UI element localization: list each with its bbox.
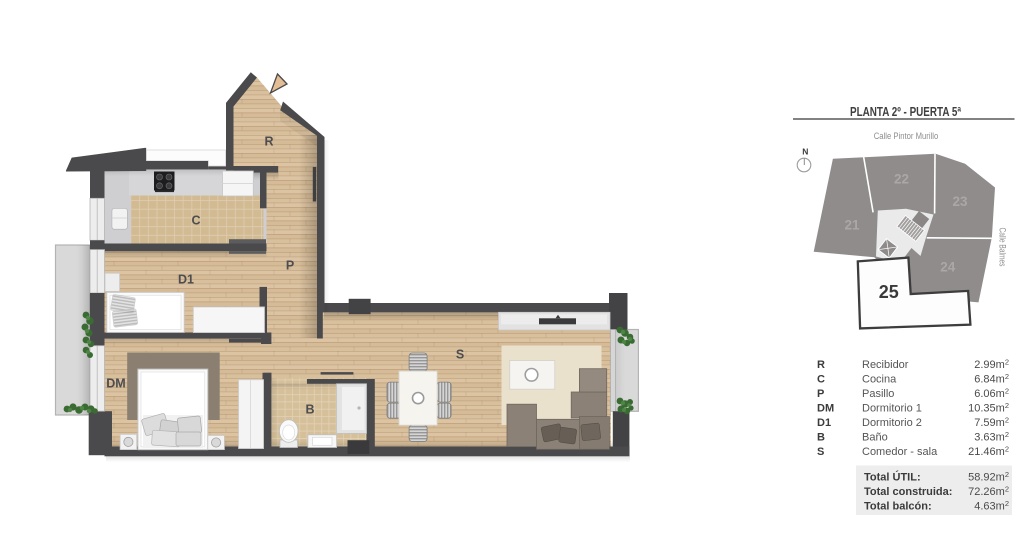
svg-text:Total ÚTIL:: Total ÚTIL: bbox=[864, 471, 921, 484]
svg-text:S: S bbox=[456, 348, 464, 362]
svg-text:23: 23 bbox=[952, 194, 968, 209]
svg-text:3.63m2: 3.63m2 bbox=[974, 430, 1009, 444]
svg-text:Calle Balmes: Calle Balmes bbox=[998, 228, 1008, 267]
svg-text:Pasillo: Pasillo bbox=[862, 388, 894, 400]
svg-text:PLANTA 2º - PUERTA 5ª: PLANTA 2º - PUERTA 5ª bbox=[850, 105, 961, 119]
svg-text:21.46m2: 21.46m2 bbox=[968, 445, 1009, 459]
svg-text:Comedor - sala: Comedor - sala bbox=[862, 446, 938, 458]
svg-text:22: 22 bbox=[894, 172, 909, 187]
svg-text:25: 25 bbox=[879, 282, 899, 302]
svg-text:S: S bbox=[817, 446, 824, 458]
svg-text:Total construida:: Total construida: bbox=[864, 486, 952, 498]
svg-text:C: C bbox=[817, 374, 825, 386]
svg-text:B: B bbox=[305, 403, 314, 417]
svg-text:Dormitorio 1: Dormitorio 1 bbox=[862, 403, 922, 415]
svg-text:R: R bbox=[817, 359, 825, 371]
svg-text:10.35m2: 10.35m2 bbox=[968, 401, 1009, 415]
svg-text:4.63m2: 4.63m2 bbox=[974, 499, 1009, 513]
svg-text:6.06m2: 6.06m2 bbox=[974, 387, 1009, 401]
svg-text:Dormitorio 2: Dormitorio 2 bbox=[862, 417, 922, 429]
svg-text:6.84m2: 6.84m2 bbox=[974, 372, 1009, 386]
svg-text:DM: DM bbox=[817, 403, 834, 415]
svg-text:D1: D1 bbox=[178, 273, 194, 287]
svg-text:Recibidor: Recibidor bbox=[862, 359, 909, 371]
svg-text:P: P bbox=[286, 259, 294, 273]
svg-text:DM: DM bbox=[106, 377, 125, 391]
svg-text:D1: D1 bbox=[817, 417, 831, 429]
svg-text:Total balcón:: Total balcón: bbox=[864, 501, 932, 513]
svg-text:N: N bbox=[802, 146, 808, 156]
svg-text:P: P bbox=[817, 388, 824, 400]
svg-text:B: B bbox=[817, 432, 825, 444]
svg-text:72.26m2: 72.26m2 bbox=[968, 485, 1009, 499]
svg-text:Baño: Baño bbox=[862, 432, 888, 444]
svg-text:2.99m2: 2.99m2 bbox=[974, 358, 1009, 372]
svg-text:R: R bbox=[264, 135, 273, 149]
svg-text:Calle Pintor Murillo: Calle Pintor Murillo bbox=[874, 131, 939, 141]
svg-text:21: 21 bbox=[844, 218, 860, 233]
svg-text:C: C bbox=[191, 214, 200, 228]
svg-text:58.92m2: 58.92m2 bbox=[968, 470, 1009, 484]
svg-text:24: 24 bbox=[940, 260, 956, 275]
svg-text:Cocina: Cocina bbox=[862, 374, 897, 386]
svg-text:7.59m2: 7.59m2 bbox=[974, 416, 1009, 430]
